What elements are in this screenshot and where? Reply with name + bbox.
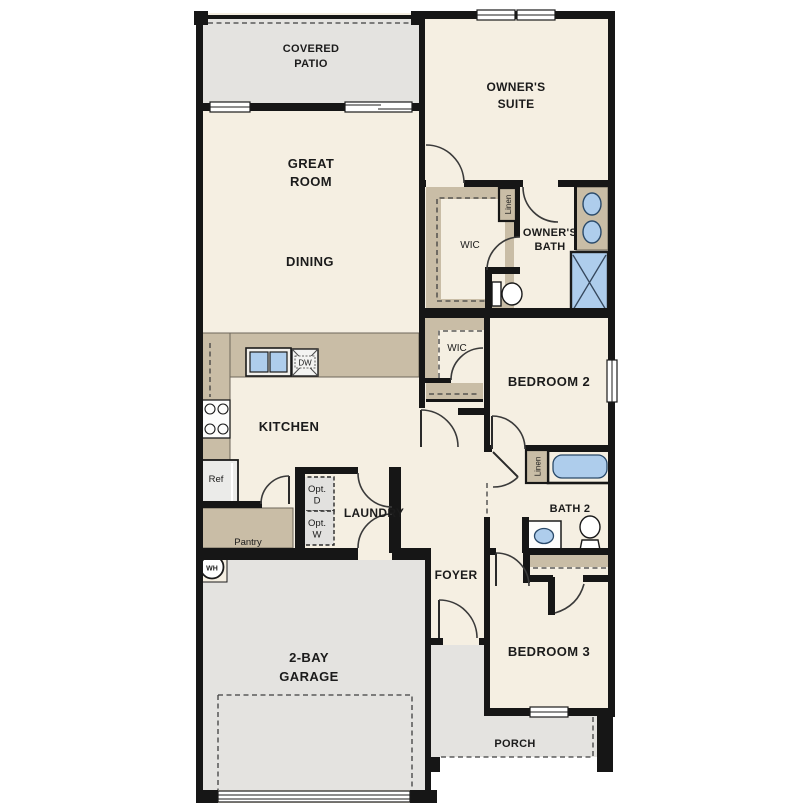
owners-bath-label-2: BATH (535, 241, 566, 253)
wall-patio-top (196, 15, 425, 19)
covered-patio-label-2: PATIO (294, 58, 328, 70)
greatroom-window (210, 102, 250, 112)
kitchen-label: KITCHEN (259, 419, 320, 434)
bath2-tub-icon (548, 450, 612, 483)
wall-bath2-bottom-b (529, 548, 615, 555)
laundry-label: LAUNDRY (344, 506, 404, 520)
optional-washer: Opt. W (301, 511, 334, 545)
great-room-label-2: ROOM (290, 174, 332, 189)
refrigerator-label: Ref (209, 474, 224, 485)
bath2-sink-icon (528, 521, 561, 552)
wall-closet3-stub (548, 577, 555, 615)
hall-wic-label: WIC (447, 343, 466, 354)
greatroom-slider-door (345, 102, 412, 112)
floor-fills (196, 11, 615, 803)
owners-wic-label: WIC (460, 240, 479, 251)
wall-porch-post-right (597, 712, 613, 772)
wall-garage-bottom-a (196, 790, 218, 803)
hall-wic-floor (438, 330, 484, 378)
bedroom2-label: BEDROOM 2 (508, 374, 590, 389)
owners-suite-window-2 (517, 10, 555, 20)
wall-suite-bottom-a (419, 180, 426, 187)
opt-dryer-line1: Opt. (308, 484, 326, 495)
opt-dryer-line2: D (314, 496, 321, 507)
garage-label-2: GARAGE (279, 669, 338, 684)
wall-spine (419, 103, 425, 408)
owners-suite-label-1: OWNER'S (487, 80, 546, 94)
wall-closet3-front-b (583, 575, 610, 582)
bedroom3-label: BEDROOM 3 (508, 644, 590, 659)
opt-washer-line2: W (313, 530, 322, 541)
wall-pantry-top (196, 501, 262, 508)
wall-foyer-bottom-a (425, 638, 443, 645)
wall-garage-bottom-b (410, 790, 437, 803)
wall-left-exterior (196, 13, 203, 803)
hall-linen-label: Linen (534, 457, 543, 477)
pantry-label: Pantry (234, 537, 262, 548)
floor-plan: DW Ref WH Opt. D Opt. (0, 0, 810, 810)
hall-closet-shelf (426, 383, 483, 399)
wall-laundry-left (295, 467, 305, 553)
owners-linen-label: Linen (504, 195, 513, 215)
floor-plan-canvas: DW Ref WH Opt. D Opt. (0, 0, 810, 810)
wall-suite-bottom-c (558, 180, 615, 187)
dishwasher-icon: DW (292, 349, 318, 376)
wall-vanity-edge (574, 187, 577, 250)
refrigerator-icon: Ref (200, 460, 238, 504)
wall-bedroom2-left (484, 315, 490, 448)
wall-hall-closet-front (426, 399, 483, 402)
wall-bedroom3-left (484, 555, 490, 715)
wall-toilet-nook-left (485, 267, 492, 315)
wall-patio-post-left (194, 11, 208, 25)
stove-icon (202, 400, 230, 438)
garage-label-1: 2-BAY (289, 650, 329, 665)
wall-bath2-bottom-a (484, 548, 496, 555)
bath2-toilet-icon (580, 516, 600, 550)
owners-shower-icon (571, 252, 608, 313)
great-room-label-1: GREAT (288, 156, 335, 171)
bath2-label: BATH 2 (550, 503, 591, 515)
foyer-label: FOYER (435, 568, 478, 582)
owners-suite-label-2: SUITE (498, 97, 535, 111)
kitchen-counter-left (202, 333, 230, 460)
water-heater-label: WH (206, 566, 218, 573)
garage-door (218, 791, 410, 802)
wall-porch-post-left (425, 757, 440, 772)
owners-toilet-icon (492, 282, 522, 306)
wall-bath2-sink (522, 517, 529, 553)
wall-patio-right (419, 15, 425, 111)
opt-washer-line1: Opt. (308, 518, 326, 529)
wall-garage-top-a (196, 548, 358, 560)
bedroom3-closet-shelf (529, 553, 609, 567)
covered-patio-label-1: COVERED (283, 43, 340, 55)
wall-garage-top-b (392, 548, 426, 560)
porch-label: PORCH (494, 738, 535, 750)
bedroom3-window (530, 707, 568, 717)
dining-label: DINING (286, 254, 334, 269)
wall-foyer-bottom-b (479, 638, 490, 645)
kitchen-sink-icon (246, 348, 291, 376)
bedroom2-window (607, 360, 617, 402)
wall-hall-corner (458, 408, 490, 415)
wall-wic2-front (419, 378, 451, 383)
owners-suite-window-1 (477, 10, 515, 20)
dishwasher-label: DW (298, 359, 312, 368)
wall-laundry-top (295, 467, 358, 474)
wall-bedroom2-bottom-a (484, 445, 492, 452)
optional-dryer: Opt. D (301, 477, 334, 511)
wall-bath-bedroom2 (419, 308, 615, 318)
owners-bath-label-1: OWNER'S (523, 227, 577, 239)
